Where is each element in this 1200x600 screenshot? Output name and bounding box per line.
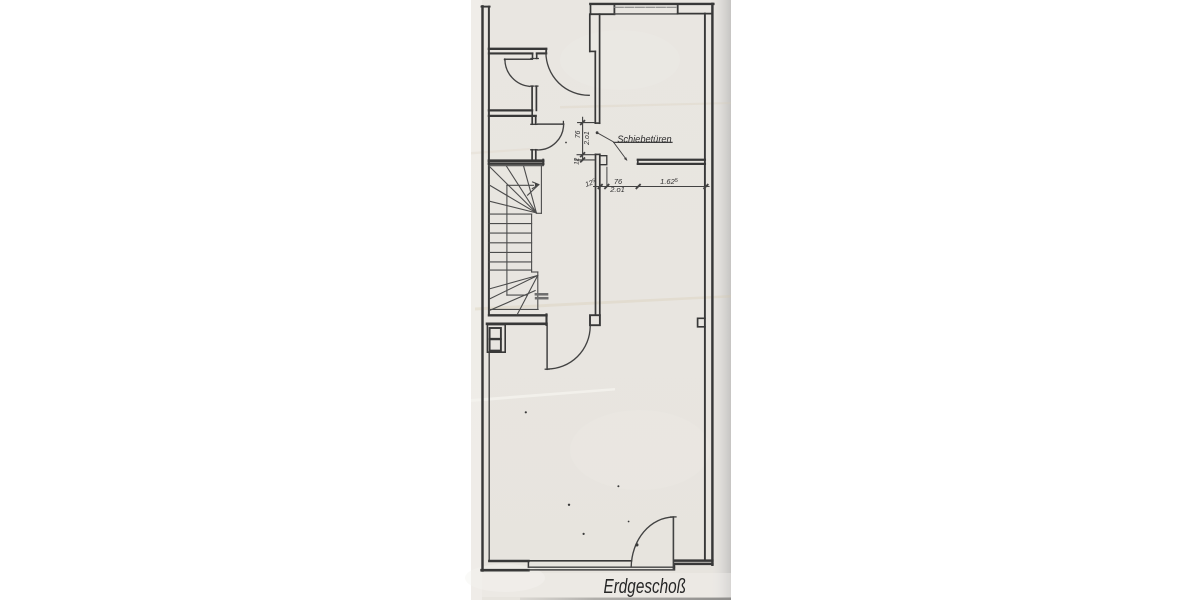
svg-text:76: 76 (575, 131, 582, 139)
svg-text:Schiebetüren: Schiebetüren (617, 133, 672, 145)
svg-text:2.o1: 2.o1 (609, 185, 625, 194)
svg-text:2.o1: 2.o1 (584, 131, 591, 146)
svg-text:12: 12 (574, 157, 581, 165)
svg-text:Erdgeschoß: Erdgeschoß (604, 576, 687, 598)
